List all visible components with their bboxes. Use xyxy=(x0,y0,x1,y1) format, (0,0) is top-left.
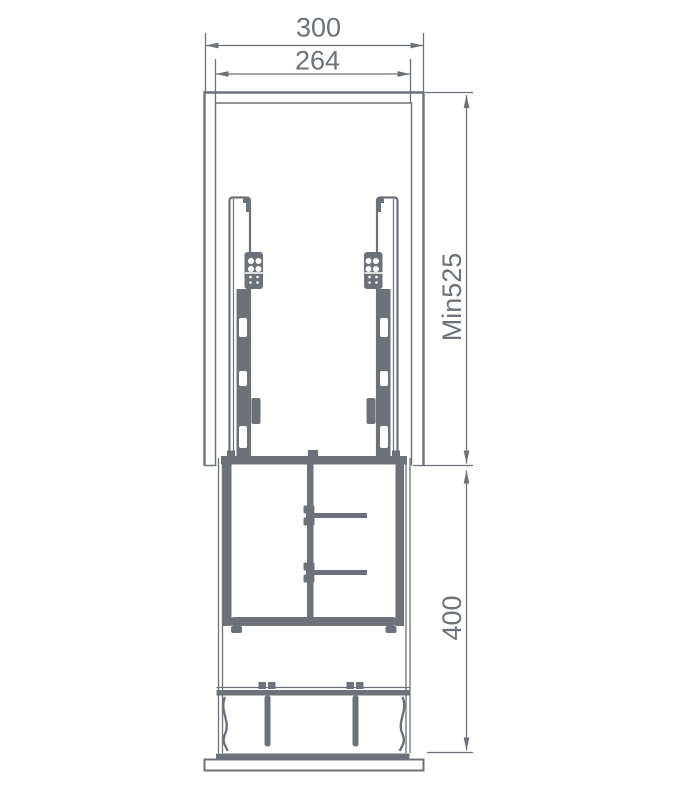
mounting-hole xyxy=(373,258,379,264)
plate-pin-hole xyxy=(368,281,371,284)
tray-cross-rail xyxy=(217,690,411,696)
tray-divider-post xyxy=(353,696,359,747)
dimension-inner-width: 264 xyxy=(216,46,411,104)
basket-foot xyxy=(386,626,397,633)
tray-clip xyxy=(268,682,276,689)
tray-clip xyxy=(356,682,364,689)
dimension-label-upper-height: Min525 xyxy=(437,253,467,342)
latch-block xyxy=(367,398,376,424)
mounting-hole xyxy=(256,258,262,264)
frame-tab xyxy=(308,450,318,457)
bracket-clamp xyxy=(304,506,315,514)
basket-top-rail xyxy=(221,456,407,465)
slide-slot xyxy=(239,426,247,448)
arrowhead-up-icon xyxy=(464,95,470,108)
tray-divider-post xyxy=(265,696,271,747)
base-plate xyxy=(205,760,424,771)
basket-frame xyxy=(221,450,407,633)
right-rail xyxy=(364,198,398,457)
plate-pin-hole xyxy=(256,276,259,279)
plate-pin-hole xyxy=(375,276,378,279)
latch-block xyxy=(252,398,261,424)
mounting-hole xyxy=(248,266,254,272)
mounting-hole xyxy=(373,266,379,272)
arrowhead-right-icon xyxy=(398,71,411,77)
mounting-hole xyxy=(366,266,372,272)
arrowhead-up-icon xyxy=(464,471,470,484)
dimension-lower-height: 400 xyxy=(427,471,473,753)
dimension-label-lower-height: 400 xyxy=(437,595,467,640)
plate-pin-hole xyxy=(249,281,252,284)
bracket-clamp xyxy=(304,575,315,583)
slide-slot xyxy=(380,371,388,386)
rail-hook-notch xyxy=(243,203,246,212)
plate-pin-hole xyxy=(249,276,252,279)
arrowhead-right-icon xyxy=(411,43,424,49)
mounting-hole xyxy=(366,258,372,264)
dimension-label-outer-width: 300 xyxy=(296,13,341,43)
bracket-arm xyxy=(306,570,367,575)
lower-tray-assembly xyxy=(205,682,424,771)
left-rail xyxy=(230,198,264,457)
slide-slot xyxy=(239,318,247,337)
basket-right-rail xyxy=(396,456,405,626)
side-spring-right xyxy=(400,697,404,751)
rail-hook-notch xyxy=(381,203,384,212)
plate-pin-hole xyxy=(375,281,378,284)
slide-slot xyxy=(380,426,388,448)
tray-clip xyxy=(347,682,355,689)
arrowhead-down-icon xyxy=(464,451,470,464)
tray-clip xyxy=(259,682,267,689)
basket-left-rail xyxy=(223,456,232,626)
bracket-clamp xyxy=(304,518,315,526)
arrowhead-left-icon xyxy=(206,43,219,49)
basket-center-divider xyxy=(307,456,314,626)
dimension-label-inner-width: 264 xyxy=(295,46,340,76)
slide-slot xyxy=(380,318,388,337)
side-spring-left xyxy=(223,697,227,751)
technical-drawing-page: 300 264 Min525 400 xyxy=(0,0,697,800)
mounting-hole xyxy=(248,258,254,264)
basket-foot xyxy=(231,626,242,633)
bracket-arm xyxy=(306,513,367,518)
slide-slot xyxy=(239,371,247,386)
bracket-clamp xyxy=(304,563,315,571)
dimension-upper-height: Min525 xyxy=(413,93,473,466)
arrowhead-left-icon xyxy=(216,71,229,77)
plate-pin-hole xyxy=(368,276,371,279)
frame-side-rails xyxy=(219,458,411,753)
cabinet-lift-drawing: 300 264 Min525 400 xyxy=(0,0,697,800)
plate-pin-hole xyxy=(256,281,259,284)
mounting-hole xyxy=(256,266,262,272)
arrowhead-down-icon xyxy=(464,738,470,751)
